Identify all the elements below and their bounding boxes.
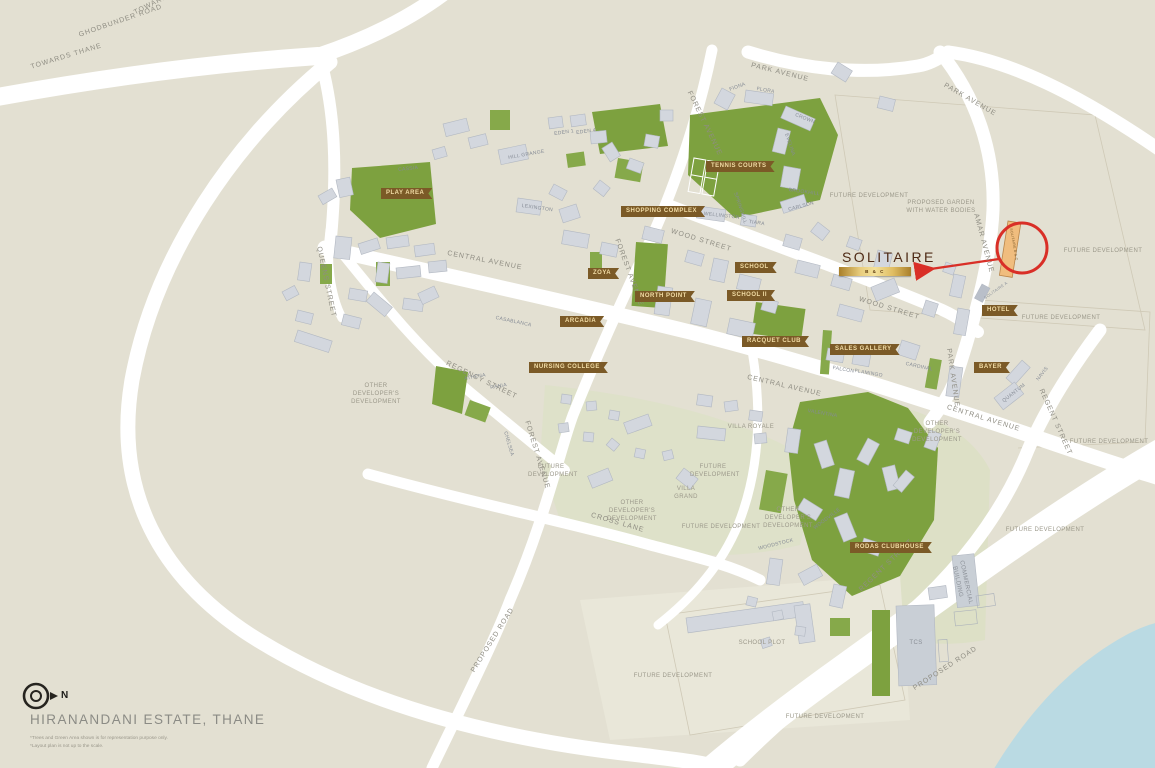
tag-bayer: BAYER xyxy=(974,362,1010,373)
building-label-tiara: TIARA xyxy=(748,220,765,227)
street-label-central-avenue-1: CENTRAL AVENUE xyxy=(447,250,523,271)
building-label-carlson: CARLSON xyxy=(788,201,815,213)
street-label-wood-street-2: WOOD STREET xyxy=(858,296,920,321)
building-label-valentina: VALENTINA xyxy=(807,409,838,419)
building-label-quantum: QUANTUM xyxy=(1002,383,1027,404)
street-label-proposed-road-left: PROPOSED ROAD xyxy=(470,607,516,674)
building-label-eden1: EDEN 1 xyxy=(554,129,574,137)
area-tcs: TCS xyxy=(904,640,928,648)
tag-zoya: ZOYA xyxy=(588,268,619,279)
building-label-casablanca: CASABLANCA xyxy=(495,316,532,329)
building-label-cardinal: CARDINAL xyxy=(905,362,933,373)
tag-rodas-clubhouse: RODAS CLUBHOUSE xyxy=(850,542,932,553)
area-other-developers-1: OTHER DEVELOPER'S DEVELOPMENT xyxy=(344,383,408,406)
solitaire-callout-title: SOLITAIRE xyxy=(842,249,936,265)
tag-tennis-courts: TENNIS COURTS xyxy=(706,161,775,172)
street-label-park-avenue-ne: PARK AVENUE xyxy=(943,82,998,118)
solitaire-building-label: SOLITAIRE B & C xyxy=(1009,228,1019,261)
area-future-development-7: FUTURE DEVELOPMENT xyxy=(676,524,766,532)
building-label-eden4: EDEN 4 xyxy=(576,128,596,136)
area-future-development-2: FUTURE DEVELOPMENT xyxy=(1058,248,1148,256)
area-future-development-8: FUTURE DEVELOPMENT xyxy=(628,673,718,681)
tag-north-point: NORTH POINT xyxy=(635,291,695,302)
area-future-development-3: FUTURE DEVELOPMENT xyxy=(1016,315,1106,323)
tag-shopping-complex: SHOPPING COMPLEX xyxy=(621,206,705,217)
area-future-development-10: FUTURE DEVELOPMENT xyxy=(780,714,870,722)
street-label-park-avenue-right: PARK AVENUE xyxy=(945,348,960,408)
area-other-developers-2: OTHER DEVELOPER'S DEVELOPMENT xyxy=(905,421,969,444)
north-label: N xyxy=(61,690,68,701)
tag-racquet-club: RACQUET CLUB xyxy=(742,336,809,347)
estate-map: TOWARDS THANE GHODBUNDER ROAD TOWARDS BO… xyxy=(0,0,1155,768)
building-label-chelsea: CHELSEA xyxy=(502,431,514,457)
street-label-wood-street-1: WOOD STREET xyxy=(670,228,732,253)
street-label-proposed-road-right: PROPOSED ROAD xyxy=(912,645,979,692)
tag-school-ii: SCHOOL II xyxy=(727,290,775,301)
street-label-park-avenue-top: PARK AVENUE xyxy=(750,62,809,83)
building-label-woodstock: WOODSTOCK xyxy=(758,538,794,552)
building-label-fiona: FIONA xyxy=(729,82,746,92)
solitaire-a-label: SOLITAIRE A xyxy=(983,280,1008,300)
map-title: HIRANANDANI ESTATE, THANE xyxy=(30,712,265,727)
disclaimer-line-1: *Trees and Green Area shown is for repre… xyxy=(30,735,168,743)
area-commercial-building: COMMERCIAL BUILDING xyxy=(949,560,973,602)
area-school-plot: SCHOOL PLOT xyxy=(732,640,792,648)
building-label-lexington: LEXINGTON xyxy=(521,204,553,213)
area-proposed-garden: PROPOSED GARDEN WITH WATER BODIES xyxy=(898,200,984,216)
area-future-development-6: FUTURE DEVELOPMENT xyxy=(690,464,736,480)
area-other-developers-3: OTHER DEVELOPER'S DEVELOPMENT xyxy=(756,507,820,530)
tag-hotel: HOTEL xyxy=(982,305,1018,316)
building-label-brookhill: BROOKHILL xyxy=(788,188,820,197)
building-label-flamingo: FLAMINGO xyxy=(854,369,883,379)
building-label-crown: CROWN xyxy=(794,113,815,125)
street-label-regency-street: REGENCY STREET xyxy=(445,360,518,401)
area-future-development-9: FUTURE DEVELOPMENT xyxy=(1000,527,1090,535)
area-future-development-5: FUTURE DEVELOPMENT xyxy=(528,464,574,480)
solitaire-callout-bar: B & C xyxy=(839,267,911,276)
area-other-developers-4: OTHER DEVELOPER'S DEVELOPMENT xyxy=(600,500,664,523)
disclaimer-line-2: *Layout plan is not up to the scale. xyxy=(30,743,103,751)
tag-nursing-college: NURSING COLLEGE xyxy=(529,362,608,373)
area-villa-grand: VILLA GRAND xyxy=(672,486,700,502)
street-label-queens-street: QUEENS STREET xyxy=(315,246,337,318)
tag-arcadia: ARCADIA xyxy=(560,316,604,327)
tag-school: SCHOOL xyxy=(735,262,777,273)
building-label-wellington: WELLINGTON xyxy=(703,212,739,221)
tag-sales-gallery: SALES GALLERY xyxy=(830,344,900,355)
street-label-forest-avenue-top: FOREST AVENUE xyxy=(686,90,723,157)
street-label-central-avenue-2: CENTRAL AVENUE xyxy=(746,374,822,398)
building-label-cassia: CASSIA xyxy=(398,166,419,173)
street-label-amar-avenue: AMAR AVENUE xyxy=(972,213,995,274)
building-label-hill-grange: HILL GRANGE xyxy=(508,150,545,161)
building-label-falcon: FALCON xyxy=(832,366,854,375)
building-label-evelina: EVELINA xyxy=(783,133,795,157)
tag-play-area: PLAY AREA xyxy=(381,188,432,199)
building-label-navis: NAVIS xyxy=(1036,366,1050,382)
street-label-towards-thane: TOWARDS THANE xyxy=(30,42,103,70)
building-label-flora: FLORA xyxy=(756,87,775,95)
map-labels: TOWARDS THANE GHODBUNDER ROAD TOWARDS BO… xyxy=(0,0,1155,768)
area-future-development-4: FUTURE DEVELOPMENT xyxy=(1064,439,1154,447)
area-villa-royale: VILLA ROYALE xyxy=(716,424,786,432)
